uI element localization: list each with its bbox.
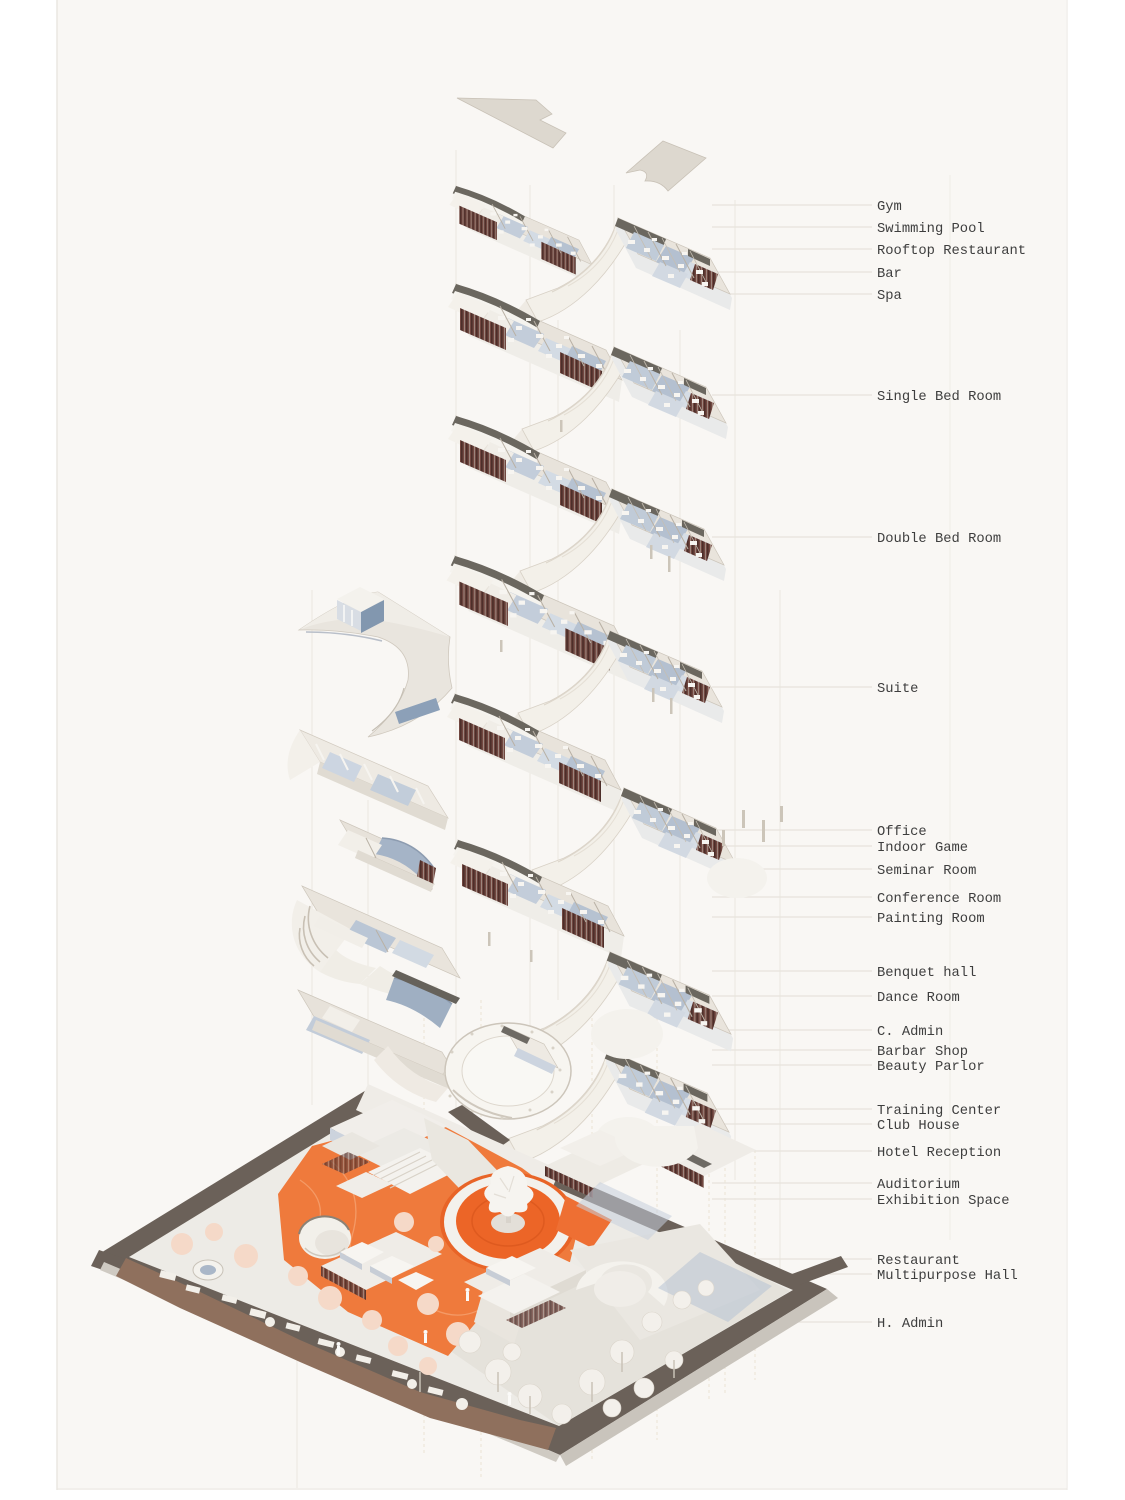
svg-text:Conference Room: Conference Room <box>877 891 1001 907</box>
svg-text:Multipurpose Hall: Multipurpose Hall <box>877 1268 1018 1284</box>
svg-text:Double Bed Room: Double Bed Room <box>877 531 1001 547</box>
svg-text:Swimming Pool: Swimming Pool <box>877 221 985 237</box>
svg-text:Painting Room: Painting Room <box>877 911 985 927</box>
svg-text:Indoor Game: Indoor Game <box>877 840 968 856</box>
svg-text:Rooftop Restaurant: Rooftop Restaurant <box>877 243 1026 259</box>
svg-text:Spa: Spa <box>877 289 902 304</box>
svg-text:Beauty Parlor: Beauty Parlor <box>877 1059 985 1075</box>
svg-text:Office: Office <box>877 824 927 840</box>
svg-text:Suite: Suite <box>877 681 918 697</box>
svg-text:Barbar Shop: Barbar Shop <box>877 1044 968 1060</box>
svg-text:Club House: Club House <box>877 1118 960 1134</box>
svg-text:Exhibition Space: Exhibition Space <box>877 1193 1009 1209</box>
svg-text:Seminar Room: Seminar Room <box>877 863 976 879</box>
svg-text:Restaurant: Restaurant <box>877 1254 960 1269</box>
svg-text:Single Bed Room: Single Bed Room <box>877 389 1001 405</box>
svg-text:Dance Room: Dance Room <box>877 991 960 1006</box>
svg-text:Hotel Reception: Hotel Reception <box>877 1145 1001 1161</box>
svg-text:Benquet hall: Benquet hall <box>877 965 976 981</box>
svg-text:Auditorium: Auditorium <box>877 1177 960 1193</box>
svg-text:Gym: Gym <box>877 200 902 215</box>
svg-text:H. Admin: H. Admin <box>877 1316 943 1332</box>
svg-text:Bar: Bar <box>877 267 902 282</box>
svg-text:C. Admin: C. Admin <box>877 1024 943 1040</box>
svg-text:Training Center: Training Center <box>877 1103 1001 1119</box>
